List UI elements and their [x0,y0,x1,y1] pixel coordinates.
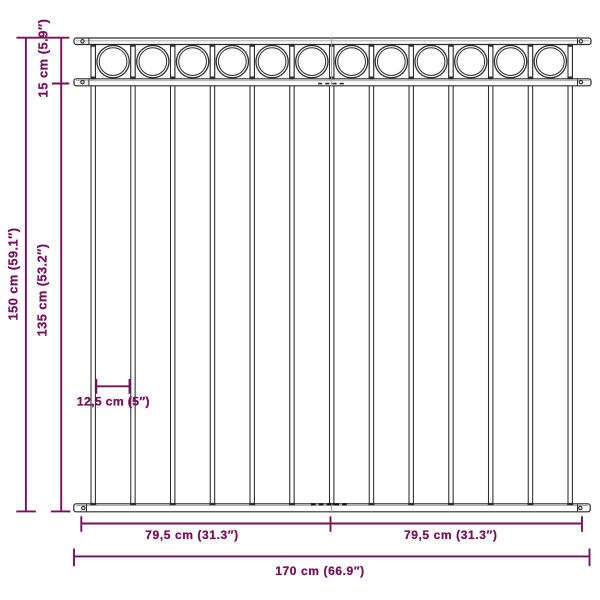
svg-text:79,5 cm (31.3″): 79,5 cm (31.3″) [404,528,497,542]
svg-text:79,5 cm (31.3″): 79,5 cm (31.3″) [145,528,238,542]
svg-text:150 cm (59.1″): 150 cm (59.1″) [6,228,21,321]
svg-text:135 cm (53.2″): 135 cm (53.2″) [35,244,50,337]
svg-text:12,5 cm (5″): 12,5 cm (5″) [77,394,150,408]
svg-text:170 cm (66.9″): 170 cm (66.9″) [275,564,365,578]
svg-text:15 cm (5.9″): 15 cm (5.9″) [36,19,51,98]
